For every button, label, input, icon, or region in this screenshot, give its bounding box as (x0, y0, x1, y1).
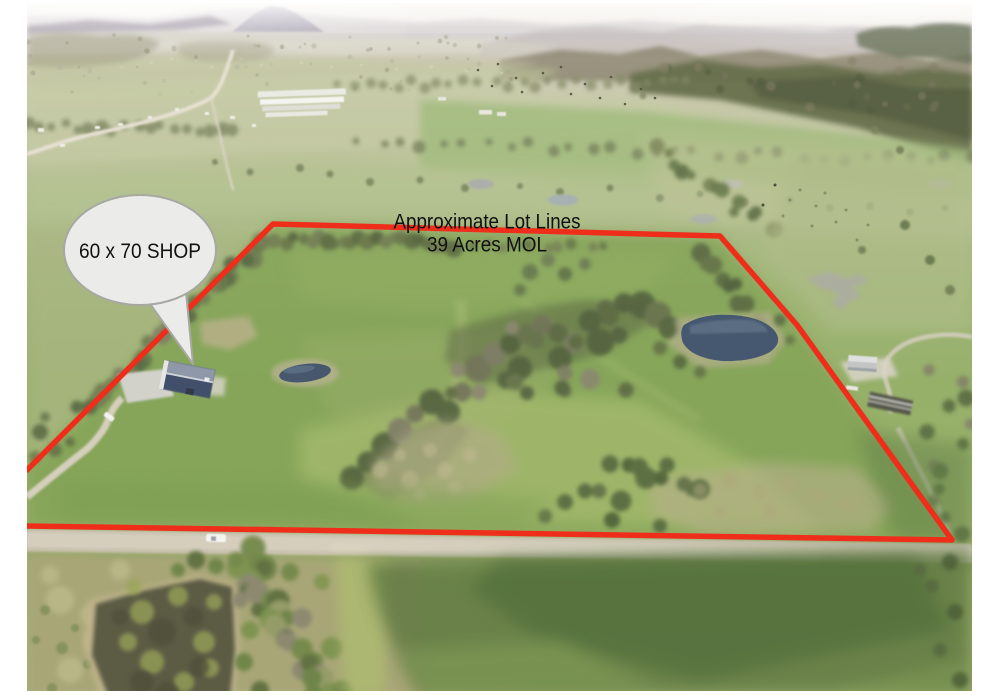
svg-text:60 x 70 SHOP: 60 x 70 SHOP (79, 240, 201, 263)
svg-text:39 Acres MOL: 39 Acres MOL (427, 234, 547, 257)
svg-text:Approximate Lot Lines: Approximate Lot Lines (394, 211, 581, 234)
